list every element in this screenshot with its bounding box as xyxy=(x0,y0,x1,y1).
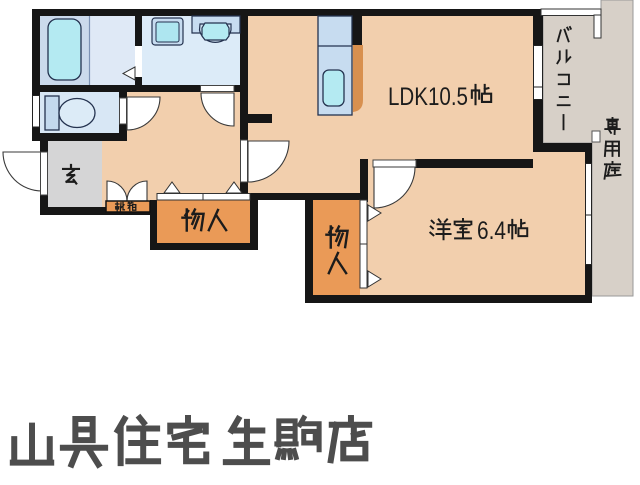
svg-text:LDK10.5: LDK10.5 xyxy=(388,83,468,111)
svg-text:6.4: 6.4 xyxy=(477,217,506,245)
